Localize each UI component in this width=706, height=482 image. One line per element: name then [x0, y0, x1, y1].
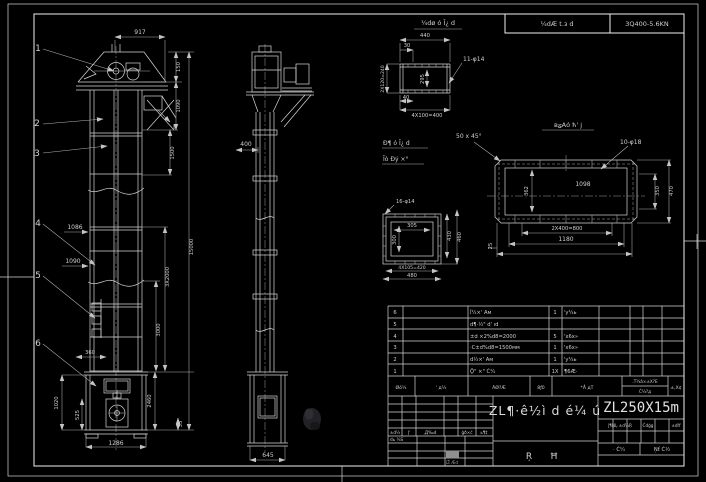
callout-5: 5 [35, 271, 41, 281]
model-number: ZL250X15m [603, 400, 679, 416]
bom-rows: 6 Ĭ¼×' Ам 1 'у¼ь 5 d¶·½" d' ıd 4 ±d ×2%d… [393, 309, 578, 375]
dim-sq-300: 300 [392, 235, 398, 245]
sheet-count-left: · Ć¼ [613, 446, 625, 453]
title-block: ±d¼ Į' ‚Д‰d ģð×ć ь¶‡ dь ¼S ïŽ Æd ZL¶·ê½ì… [388, 396, 684, 466]
stage-label: ĵ¶ŅĻ ±d¼Ŗ [607, 423, 632, 428]
callout-3: 3 [34, 149, 40, 159]
motor-block [126, 63, 140, 70]
front-view: 917 I 1286 360 1 [34, 29, 195, 450]
bom-row-num: 6 [393, 310, 396, 316]
detail-long-title: вؽАó ћ' ј [554, 121, 582, 129]
dim-sq-305: 305 [407, 223, 417, 229]
bom-row-num: 1 [393, 369, 396, 375]
dim-front-3x2000: 3X2000 [165, 267, 171, 287]
rev-label-sign: ģð×ć [461, 430, 473, 435]
dim-front-917: 917 [134, 29, 146, 36]
dim-long-25: 25 [488, 243, 494, 250]
weight-label: Ćdģg [643, 423, 654, 428]
dim-dt-30: 30 [404, 43, 411, 49]
bom-row-qty: 1Х [552, 369, 559, 375]
dim-front-1090: 1090 [176, 99, 182, 112]
rev-label-zone: ‚Д‰d [424, 430, 437, 435]
label-sq-holes: 16-φ14 [396, 199, 415, 205]
dim-sq-4x105: 4X105=420 [398, 265, 426, 271]
cad-viewer-page: ¼dÆ t.з d 3Q400-5.6KN 917 I [0, 0, 706, 482]
bom-row-qty: 1 [553, 357, 556, 363]
bucket-chain [92, 299, 101, 338]
bom-header-material: *Å дТ [581, 384, 594, 391]
rev-label-date: ь¶‡ [480, 430, 487, 435]
stamp-label: ïŽ Æd [445, 460, 458, 465]
scale-label: ±dľf [671, 423, 681, 428]
dim-front-150: 150 [176, 62, 182, 72]
dim-dt-2x120: 2X120=240 [380, 65, 386, 93]
discharge-chute [144, 96, 162, 110]
bom-row-name: Ĭ¼×' Ам [469, 309, 492, 316]
label-long-holes: 10-φ18 [620, 139, 642, 146]
dim-front-3000: 3000 [156, 323, 162, 336]
callout-1: 1 [35, 44, 41, 54]
dim-front-15000: 15000 [189, 239, 195, 256]
smudge-mark [303, 408, 321, 430]
bom-row-material: 'х6х» [564, 334, 578, 340]
drawing-title: ZL¶·ê½ì d é¼ ú [489, 403, 601, 418]
dim-sq-430: 430 [447, 231, 453, 241]
dim-sq-480: 480 [407, 273, 417, 279]
side-motor [284, 68, 296, 82]
bom-header-seq: Øó¼ [396, 384, 407, 391]
dim-front-35: 35 [178, 421, 184, 428]
bom-row-material: ¶6Æ· [564, 369, 578, 375]
dim-long-362: 362 [524, 186, 530, 196]
bom-header-weight-top: .Т¼â×±Х?Е [632, 379, 658, 384]
bom-row-name: d¶·½" d' ıd [470, 321, 498, 328]
bom-header-remark: ±,Х¢ [670, 385, 681, 391]
bom-row-material: 'х6х» [564, 345, 578, 351]
dim-front-525: 525 [75, 410, 81, 420]
approval-stamp [446, 451, 459, 458]
callout-6: 6 [35, 339, 41, 349]
detail-sq-title2: Īò Đý ×° [383, 156, 408, 163]
bom-header-weight-bottom: Ć¼?д [639, 389, 651, 394]
dim-front-1286: 1286 [108, 440, 123, 447]
dim-long-350: 350 [655, 186, 661, 196]
detail-long-section: вؽАó ћ' ј 50 x 45° 10-φ18 1098 362 350 4… [456, 121, 675, 257]
dim-front-360: 360 [85, 350, 95, 356]
callout-4: 4 [35, 219, 41, 229]
top-strip-right-label: 3Q400-5.6KN [625, 20, 669, 28]
side-head [252, 52, 281, 92]
dim-sq-460: 460 [457, 232, 463, 242]
label-dt-holes: 11-φ14 [463, 56, 485, 63]
dim-front-1020: 1020 [54, 396, 60, 409]
dim-side-645: 645 [262, 452, 274, 459]
dim-front-1500: 1500 [170, 146, 176, 159]
top-strip-left-label: ¼dÆ t.з d [540, 20, 573, 28]
design-label: dь ¼S [390, 437, 404, 442]
bom-table: 6 Ĭ¼×' Ам 1 'у¼ь 5 d¶·½" d' ıd 4 ±d ×2%d… [388, 306, 684, 466]
drawing-type-char-1: Ŗ [526, 452, 532, 462]
detail-square-flange: Đ¶ ó Ī¿ d Īò Đý ×° 16-φ14 305 300 430 46… [382, 140, 463, 279]
detail-sq-title1: Đ¶ ó Ī¿ d [383, 140, 410, 147]
bom-row-qty: 1 [553, 345, 556, 351]
detail-top-title: ¼dø ó Ī¿ d [421, 18, 455, 27]
bom-row-num: 5 [393, 322, 396, 328]
drawing-type-char-2: Ħ [550, 452, 558, 462]
bom-row-name: Ǭ" ×" Ć¼ [470, 368, 495, 375]
dim-dt-295: 295 [420, 74, 426, 84]
bom-row-qty: 5 [553, 334, 556, 340]
bom-header-qty: 8ƒ0 [537, 385, 545, 391]
callout-2: 2 [34, 119, 40, 129]
dim-dt-4x100: 4X100=400 [411, 113, 442, 119]
rev-label-count: Į' [408, 430, 410, 435]
bom-row-qty: 1 [553, 310, 556, 316]
dim-long-1180: 1180 [558, 236, 573, 243]
bom-row-num: 4 [393, 334, 397, 340]
detail-top-flange: ¼dø ó Ī¿ d 295 440 30 2X120=240 40 4X100… [380, 18, 485, 119]
bom-row-name: ±d ×2%d8=2000 [470, 334, 516, 340]
dim-dt-40: 40 [403, 95, 410, 101]
cad-drawing: ¼dÆ t.з d 3Q400-5.6KN 917 I [0, 0, 706, 482]
bom-row-name: ·С±d%d8=1500мм [470, 345, 520, 351]
dim-side-400: 400 [240, 141, 252, 148]
bom-row-material: 'у¼ь [564, 357, 577, 363]
platform-brace [284, 95, 311, 127]
bom-row-material: 'у¼ь [564, 310, 577, 316]
dim-long-1098: 1098 [575, 181, 590, 188]
bom-row-num: 3 [393, 345, 396, 351]
bom-row-num: 2 [393, 357, 396, 363]
dim-front-2460: 2460 [147, 394, 153, 407]
dim-front-1086: 1086 [67, 224, 82, 231]
label-chamfer: 50 x 45° [456, 133, 482, 140]
sheet-count-right: Ņť Ć½ [654, 446, 670, 453]
side-boot-window [258, 396, 277, 418]
side-view: 400 645 [236, 44, 321, 460]
rev-label-mark: ±d¼ [390, 430, 400, 435]
dim-dt-440: 440 [420, 33, 430, 39]
bom-header-code: ' д¼ [436, 385, 447, 391]
dim-long-470: 470 [669, 186, 675, 196]
bom-row-name: d½×' Ам [470, 356, 493, 363]
dim-front-1090b: 1090 [65, 258, 80, 265]
dim-long-2x400: 2X400=800 [551, 226, 582, 232]
bom-header-name: ÃØ?Æ [492, 384, 506, 391]
